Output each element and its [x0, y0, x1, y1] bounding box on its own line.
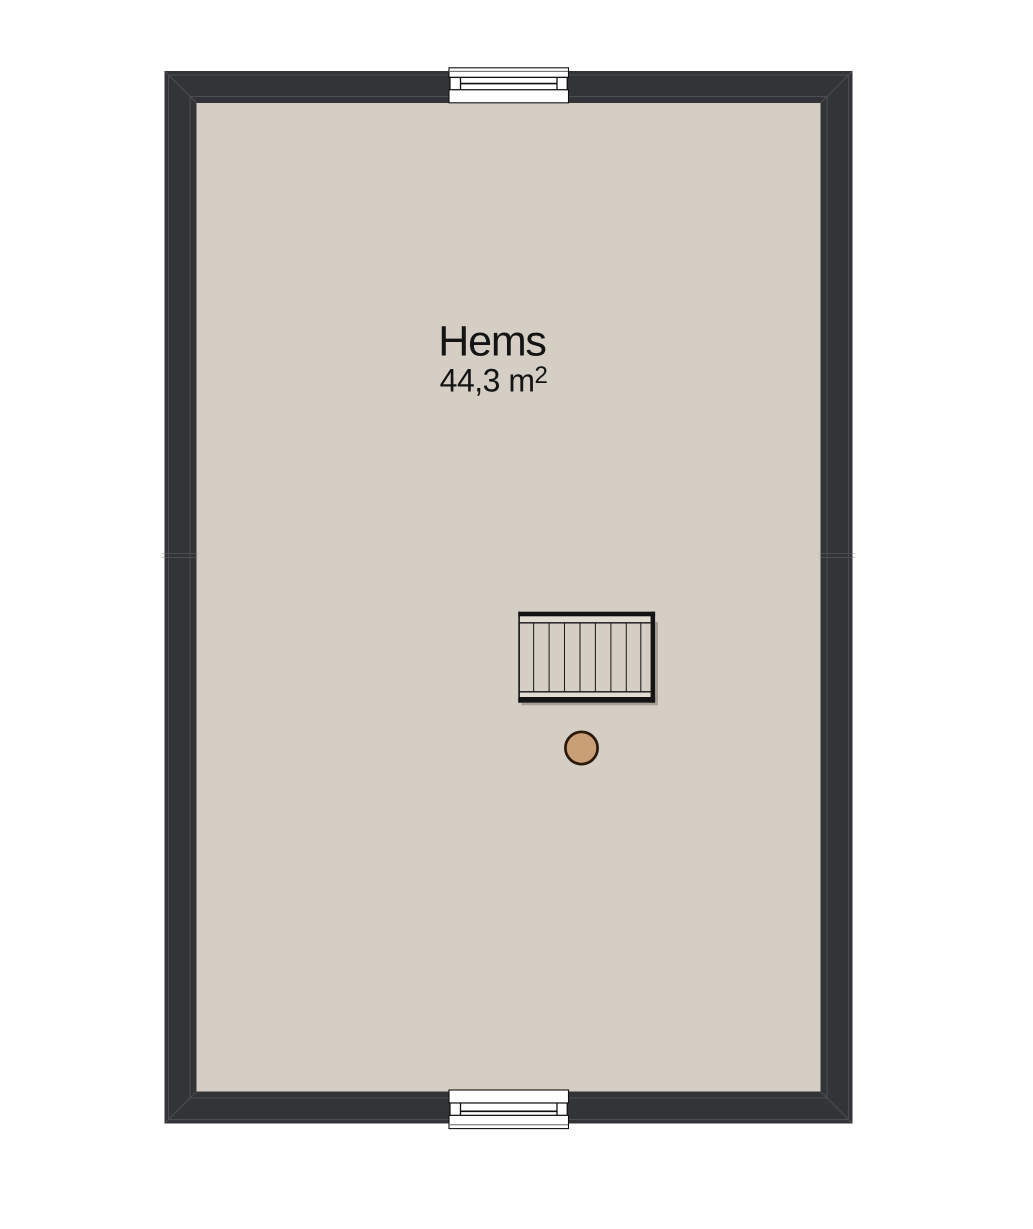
- svg-text:44,3 m2: 44,3 m2: [440, 362, 548, 398]
- svg-text:Hems: Hems: [438, 318, 546, 366]
